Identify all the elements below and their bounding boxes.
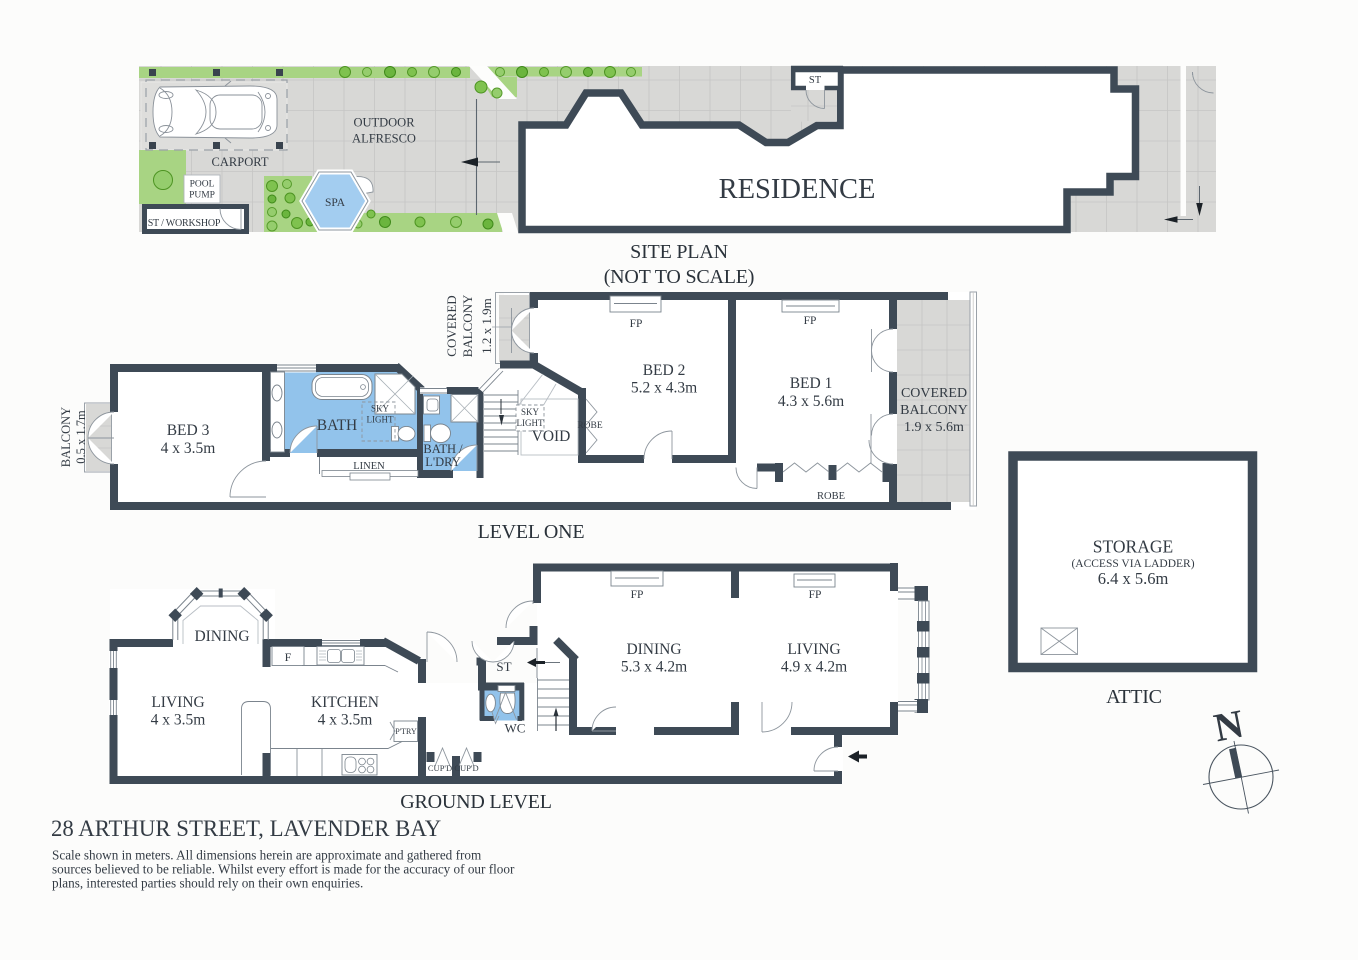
svg-text:4 x 3.5m: 4 x 3.5m bbox=[318, 712, 373, 729]
svg-text:4 x 3.5m: 4 x 3.5m bbox=[161, 440, 216, 457]
svg-text:BATH: BATH bbox=[317, 417, 357, 434]
svg-text:ROBE: ROBE bbox=[577, 421, 603, 431]
svg-text:SITE PLAN: SITE PLAN bbox=[630, 241, 728, 263]
svg-text:WC: WC bbox=[505, 721, 526, 736]
svg-text:BALCONY: BALCONY bbox=[59, 407, 73, 467]
svg-text:ALFRESCO: ALFRESCO bbox=[352, 132, 416, 146]
svg-text:ATTIC: ATTIC bbox=[1106, 686, 1162, 708]
svg-text:SKY: SKY bbox=[371, 404, 390, 414]
svg-text:1.9 x 5.6m: 1.9 x 5.6m bbox=[904, 420, 964, 435]
svg-text:4.9 x 4.2m: 4.9 x 4.2m bbox=[781, 659, 847, 676]
svg-text:STORAGE: STORAGE bbox=[1093, 537, 1173, 557]
svg-text:1.2 x 1.9m: 1.2 x 1.9m bbox=[479, 298, 494, 354]
svg-text:COVERED: COVERED bbox=[444, 295, 459, 356]
svg-text:LEVEL ONE: LEVEL ONE bbox=[478, 521, 585, 543]
svg-text:P'TRY: P'TRY bbox=[395, 727, 417, 736]
svg-text:BED 3: BED 3 bbox=[167, 422, 210, 439]
svg-text:DINING: DINING bbox=[626, 641, 681, 658]
svg-text:28 ARTHUR STREET, LAVENDER BAY: 28 ARTHUR STREET, LAVENDER BAY bbox=[51, 816, 441, 841]
svg-text:LIGHT: LIGHT bbox=[367, 415, 394, 425]
svg-text:BALCONY: BALCONY bbox=[900, 403, 968, 418]
svg-text:BALCONY: BALCONY bbox=[460, 294, 475, 357]
svg-text:Scale shown in meters. All dim: Scale shown in meters. All dimensions he… bbox=[52, 848, 482, 863]
svg-text:VOID: VOID bbox=[532, 428, 571, 445]
svg-text:6.4 x 5.6m: 6.4 x 5.6m bbox=[1098, 569, 1169, 588]
svg-text:DINING: DINING bbox=[194, 628, 249, 645]
svg-text:COVERED: COVERED bbox=[901, 386, 967, 401]
svg-text:LIGHT: LIGHT bbox=[517, 418, 544, 428]
svg-text:FP: FP bbox=[809, 589, 822, 601]
svg-text:FP: FP bbox=[804, 315, 817, 327]
svg-text:ST / WORKSHOP: ST / WORKSHOP bbox=[148, 218, 221, 229]
svg-text:CUP'D: CUP'D bbox=[454, 763, 478, 773]
svg-text:(NOT TO SCALE): (NOT TO SCALE) bbox=[604, 266, 755, 288]
svg-text:BED 2: BED 2 bbox=[643, 362, 686, 379]
svg-text:ST: ST bbox=[496, 659, 511, 674]
svg-text:ROBE: ROBE bbox=[817, 491, 845, 502]
svg-text:BATH /: BATH / bbox=[423, 442, 463, 456]
svg-text:RESIDENCE: RESIDENCE bbox=[719, 174, 876, 205]
svg-text:F: F bbox=[285, 650, 292, 664]
svg-text:OUTDOOR: OUTDOOR bbox=[353, 116, 415, 130]
svg-text:5.3 x 4.2m: 5.3 x 4.2m bbox=[621, 659, 687, 676]
svg-text:BED 1: BED 1 bbox=[790, 375, 833, 392]
svg-text:PUMP: PUMP bbox=[189, 191, 215, 201]
svg-text:sources believed to be reliab: sources believed to be reliable. Whilst … bbox=[52, 862, 515, 877]
svg-text:4.3 x 5.6m: 4.3 x 5.6m bbox=[778, 393, 844, 410]
svg-text:SKY: SKY bbox=[521, 407, 540, 417]
svg-text:LIVING: LIVING bbox=[787, 641, 840, 658]
svg-text:GROUND LEVEL: GROUND LEVEL bbox=[400, 791, 551, 813]
svg-text:POOL: POOL bbox=[190, 180, 215, 190]
svg-text:4 x 3.5m: 4 x 3.5m bbox=[151, 712, 206, 729]
svg-text:0.5 x 1.7m: 0.5 x 1.7m bbox=[74, 410, 88, 464]
svg-text:FP: FP bbox=[631, 589, 644, 601]
svg-text:L'DRY: L'DRY bbox=[425, 455, 461, 469]
svg-text:LIVING: LIVING bbox=[151, 694, 204, 711]
svg-text:ST: ST bbox=[809, 75, 822, 86]
svg-text:plans, interested parties shou: plans, interested parties should rely on… bbox=[52, 876, 363, 891]
svg-text:5.2 x 4.3m: 5.2 x 4.3m bbox=[631, 380, 697, 397]
svg-text:SPA: SPA bbox=[325, 197, 346, 209]
svg-text:CARPORT: CARPORT bbox=[212, 155, 269, 169]
svg-text:KITCHEN: KITCHEN bbox=[311, 694, 379, 711]
svg-text:CUP'D: CUP'D bbox=[428, 763, 452, 773]
svg-text:FP: FP bbox=[630, 318, 643, 330]
